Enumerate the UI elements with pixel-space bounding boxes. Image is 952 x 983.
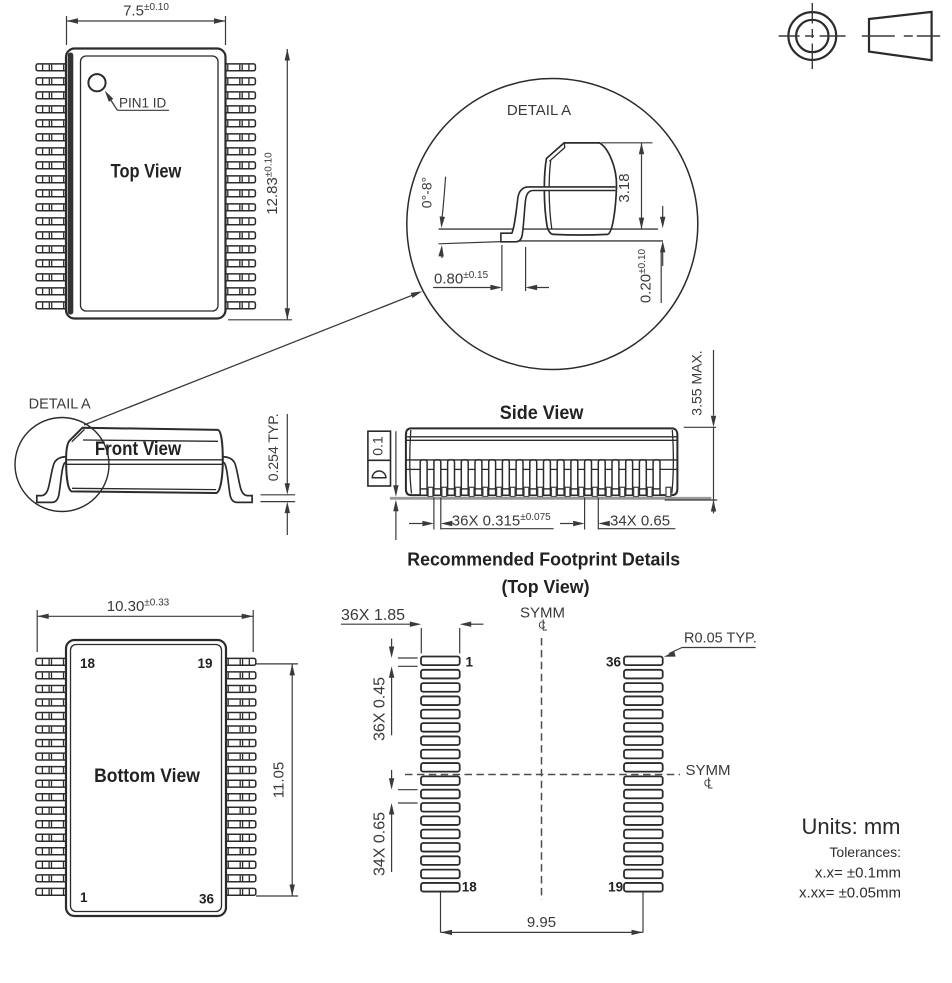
svg-text:x.x= ±0.1mm: x.x= ±0.1mm	[815, 865, 901, 882]
svg-text:0.254 TYP.: 0.254 TYP.	[265, 413, 281, 481]
svg-text:Tolerances:: Tolerances:	[829, 844, 901, 860]
svg-text:0.80±0.15: 0.80±0.15	[434, 270, 489, 288]
svg-text:x.xx= ±0.05mm: x.xx= ±0.05mm	[799, 885, 901, 902]
svg-text:36X 0.315±0.075: 36X 0.315±0.075	[452, 512, 551, 530]
svg-text:Front View: Front View	[95, 438, 182, 459]
svg-text:Units: mm: Units: mm	[802, 814, 901, 839]
svg-text:(Top View): (Top View)	[502, 577, 590, 597]
svg-text:0°-8°: 0°-8°	[419, 177, 435, 208]
svg-text:1: 1	[466, 655, 474, 670]
svg-text:18: 18	[80, 656, 96, 671]
svg-text:Top View: Top View	[111, 161, 182, 182]
svg-text:DETAIL A: DETAIL A	[29, 397, 91, 413]
svg-text:3.18: 3.18	[616, 173, 633, 202]
svg-text:10.30±0.33: 10.30±0.33	[107, 598, 170, 616]
svg-text:Recommended Footprint Details: Recommended Footprint Details	[407, 549, 680, 569]
svg-text:3.55 MAX.: 3.55 MAX.	[689, 350, 705, 415]
svg-text:0.1: 0.1	[370, 436, 386, 456]
svg-text:12.83±0.10: 12.83±0.10	[264, 152, 282, 215]
svg-text:SYMM: SYMM	[520, 605, 565, 622]
svg-text:19: 19	[608, 880, 623, 895]
svg-text:19: 19	[197, 656, 212, 671]
svg-text:36: 36	[199, 892, 215, 907]
svg-text:SYMM: SYMM	[686, 762, 731, 779]
svg-text:34X 0.65: 34X 0.65	[610, 513, 670, 530]
svg-text:0.20±0.10: 0.20±0.10	[637, 248, 655, 303]
svg-text:Bottom View: Bottom View	[94, 764, 201, 786]
svg-text:11.05: 11.05	[271, 762, 288, 798]
svg-text:DETAIL A: DETAIL A	[507, 102, 571, 119]
svg-text:R0.05 TYP.: R0.05 TYP.	[684, 631, 757, 647]
svg-text:34X 0.65: 34X 0.65	[372, 812, 389, 876]
svg-text:18: 18	[462, 880, 478, 895]
svg-text:36X 0.45: 36X 0.45	[372, 677, 389, 741]
svg-text:7.5±0.10: 7.5±0.10	[123, 2, 169, 20]
svg-text:1: 1	[80, 890, 88, 905]
svg-text:PIN1 ID: PIN1 ID	[119, 96, 167, 111]
svg-text:9.95: 9.95	[527, 914, 556, 931]
svg-text:36: 36	[606, 655, 622, 670]
svg-text:Side View: Side View	[500, 402, 584, 424]
svg-text:36X 1.85: 36X 1.85	[341, 607, 405, 624]
